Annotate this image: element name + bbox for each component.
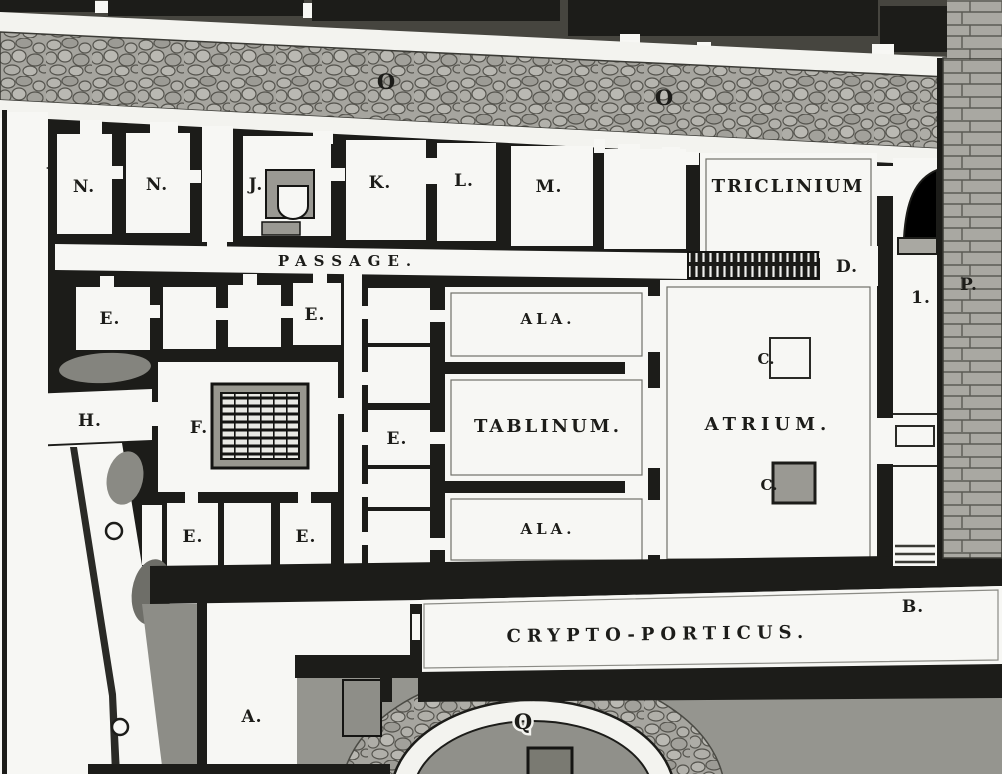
cell-unlabeled [368,469,430,507]
court-corridor [344,274,362,576]
label-cell-e-mid: E. [387,429,408,449]
label-cell-e-nw: E. [100,309,121,329]
wall-segment [380,672,392,702]
north-wall-segment [0,0,95,12]
label-cistern-c-south: C. [761,476,778,494]
label-exit-b: B. [902,597,924,617]
label-atrium: ATRIUM. [704,414,832,435]
atrium-east-doorway [877,418,894,464]
label-room-j: J. [247,175,264,195]
interior-doorway [594,139,605,153]
street-doorway [80,120,102,136]
label-court-f: F. [190,418,208,438]
hearth-basin [278,186,308,219]
north-wall-segment [568,0,878,36]
cell-unlabeled [224,503,271,566]
room-l [437,143,496,241]
interior-doorway [430,432,446,444]
interior-doorway [412,614,420,640]
interior-doorway [686,152,699,165]
label-room-m: M. [536,177,563,197]
triclinium-side-doorway [877,166,893,196]
wall-notch [625,362,648,374]
north-doorway [303,3,312,18]
interior-doorway [148,402,162,426]
label-lane-p: P. [960,275,978,295]
label-room-n2: N. [146,175,168,195]
doorway [836,230,856,248]
basin-pedestal [528,748,572,774]
interior-doorway [331,168,345,181]
wall-segment [197,592,207,774]
cell-unlabeled [368,347,430,403]
interior-doorway [150,305,160,318]
label-ala-north: ALA. [519,310,575,328]
interior-doorway [360,432,368,445]
hearth-step [262,222,300,235]
interior-doorway [360,306,368,319]
interior-doorway [216,308,228,320]
floor-plan-page: O O N. N. J. K. L. M. TRICLINIUM PASSAGE… [0,0,1002,774]
cell-unlabeled [142,505,162,565]
interior-doorway [360,372,368,385]
cell-unlabeled [228,285,281,347]
bottom-wall-line [88,764,390,774]
interior-doorway [360,532,368,545]
label-passage: PASSAGE. [278,252,418,270]
page-edge-line [2,110,7,774]
interior-doorway [430,538,446,550]
label-cistern-c-north: C. [758,350,775,368]
lane-marker-circle [106,523,122,539]
cistern-mouth-north [770,338,810,378]
label-room-n1: N. [73,177,95,197]
stairs-hatch [688,252,818,278]
label-cell-e-sw: E. [183,527,204,547]
interior-doorway [185,492,198,503]
cell-unlabeled [368,288,430,343]
label-corridor-h: H. [78,411,102,431]
label-room-l: L. [454,171,474,191]
label-ala-south: ALA. [519,520,575,538]
cistern-mouth-south [773,463,815,503]
cell-unlabeled [163,287,216,349]
ala-north-opening [648,296,662,352]
label-street-o-east: O [655,85,673,110]
interior-doorway [189,170,201,183]
tablinum-opening [648,388,662,468]
north-wall-segment [312,0,560,21]
wall-niche [424,158,441,184]
wall-segment [295,655,418,678]
east-brick-wall [943,58,1002,558]
north-wall-segment [108,0,304,16]
interior-doorway [360,484,368,497]
label-triclinium: TRICLINIUM [712,176,865,197]
garden-pillar [343,680,381,736]
alley-door-leaf [896,426,934,446]
interior-doorway [430,310,446,322]
impluvium-grate [221,393,299,459]
cell-unlabeled [368,511,430,567]
north-doorway [95,1,108,13]
label-tablinum: TABLINUM. [474,416,622,437]
room-unlabeled-front [604,149,686,249]
label-street-o-west: O [377,69,395,94]
lane-marker-circle [112,719,128,735]
west-margin [7,112,48,404]
interior-doorway [298,492,311,503]
fauces-corridor [202,126,233,242]
interior-doorway [243,274,257,285]
label-alley-one: 1. [911,288,931,308]
interior-doorway [313,272,327,283]
wall-segment [937,58,943,560]
interior-doorway [336,398,346,414]
ala-south-opening [648,500,662,555]
label-stairs-d: D. [836,257,858,277]
alley-ledge [898,238,937,254]
label-court-a: A. [240,707,262,727]
label-crypto-porticus: CRYPTO-PORTICUS. [506,622,809,647]
interior-doorway [281,306,293,318]
label-cell-e-ne: E. [305,305,326,325]
interior-doorway [110,166,123,179]
label-room-k: K. [369,173,392,193]
wall-notch [625,481,648,493]
label-basin-q: Q [514,709,532,734]
east-brick-wall-top [947,0,1002,58]
label-cell-e-se: E. [296,527,317,547]
interior-doorway [100,276,114,287]
floor-plan-drawing: O O N. N. J. K. L. M. TRICLINIUM PASSAGE… [0,0,1002,774]
